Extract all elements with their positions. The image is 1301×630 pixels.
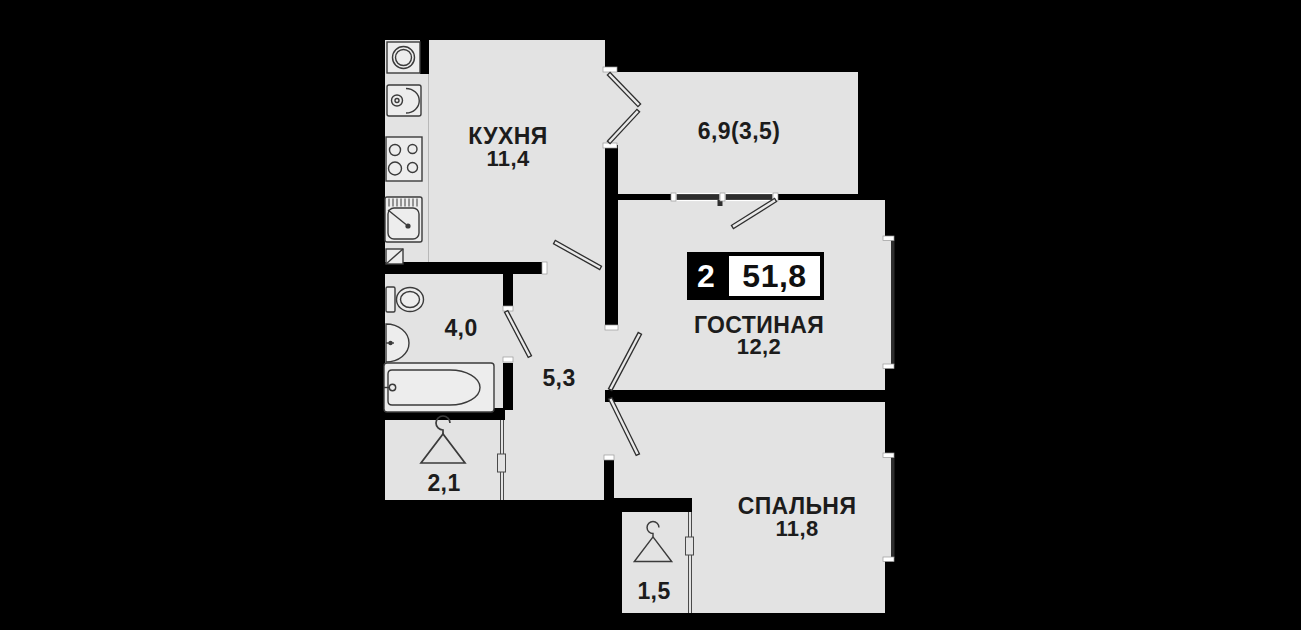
kitchen-label: КУХНЯ: [468, 125, 547, 148]
stove-icon: [386, 137, 422, 181]
washing-machine-icon: [387, 42, 420, 73]
total-area-badge: 51,8: [725, 252, 824, 300]
bedroom-label: СПАЛЬНЯ: [738, 495, 857, 518]
bathtub-icon: [384, 363, 494, 412]
closet-area: 1,5: [637, 580, 670, 603]
bedroom-area: 11,8: [775, 518, 818, 540]
wardrobe-area: 2,1: [427, 472, 460, 495]
floor-plan-svg: [0, 0, 1301, 630]
kitchen-sink-icon: [385, 197, 422, 242]
apartment-summary-badge: 2 51,8: [687, 252, 824, 300]
floor-plan: КУХНЯ 11,4 6,9(3,5) ГОСТИНАЯ 12,2 СПАЛЬН…: [0, 0, 1301, 630]
hallway-area: 5,3: [542, 367, 575, 390]
living-room-area: 12,2: [737, 336, 781, 358]
toilet-icon: [386, 287, 424, 312]
room-count-badge: 2: [687, 252, 725, 300]
kitchen-area: 11,4: [486, 148, 529, 170]
bathroom-area: 4,0: [444, 317, 477, 340]
fridge-icon: [387, 85, 421, 116]
balcony-area: 6,9(3,5): [698, 120, 780, 143]
vent-icon: [386, 249, 403, 264]
